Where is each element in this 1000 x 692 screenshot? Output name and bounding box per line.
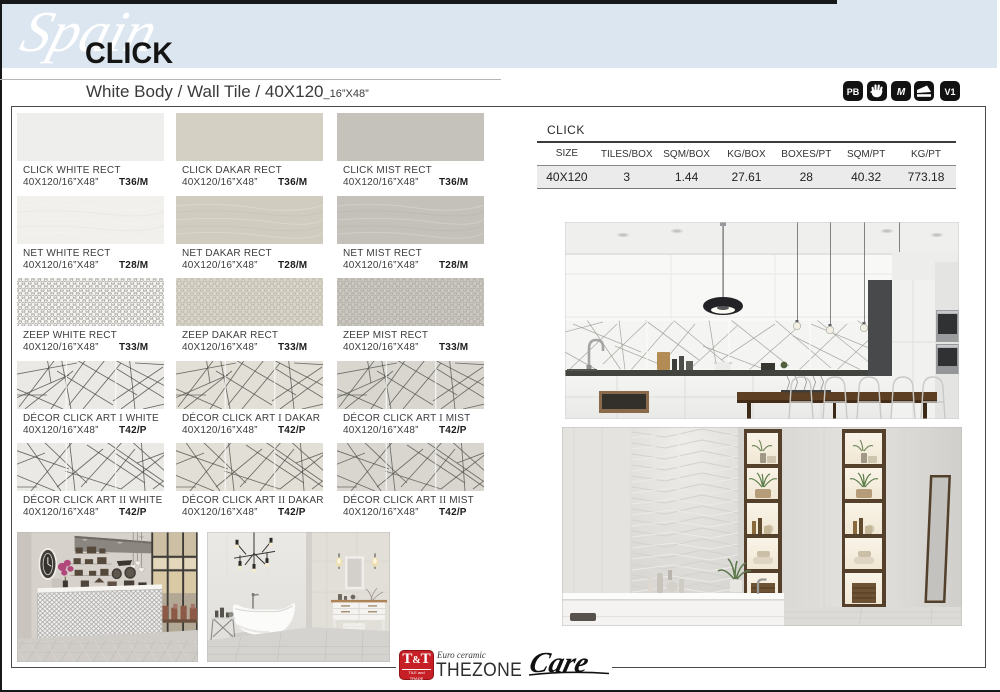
svg-text:V1: V1	[944, 87, 955, 97]
svg-text:M: M	[897, 87, 906, 98]
svg-text:PB: PB	[847, 87, 860, 97]
